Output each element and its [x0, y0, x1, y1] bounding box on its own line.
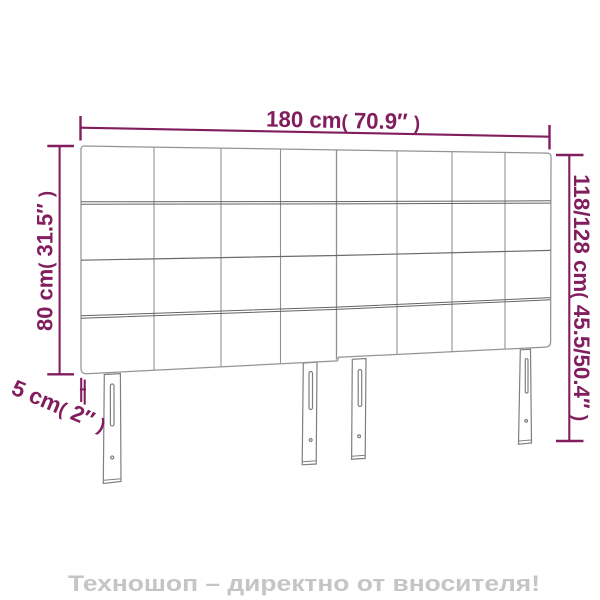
svg-text:118/128 cm( 45.5/50.4″ ): 118/128 cm( 45.5/50.4″ )	[569, 174, 594, 421]
svg-text:Техношоп – директно от вносите: Техношоп – директно от вносителя!	[68, 571, 540, 596]
svg-text:80 cm( 31.5″ ): 80 cm( 31.5″ )	[33, 191, 58, 331]
